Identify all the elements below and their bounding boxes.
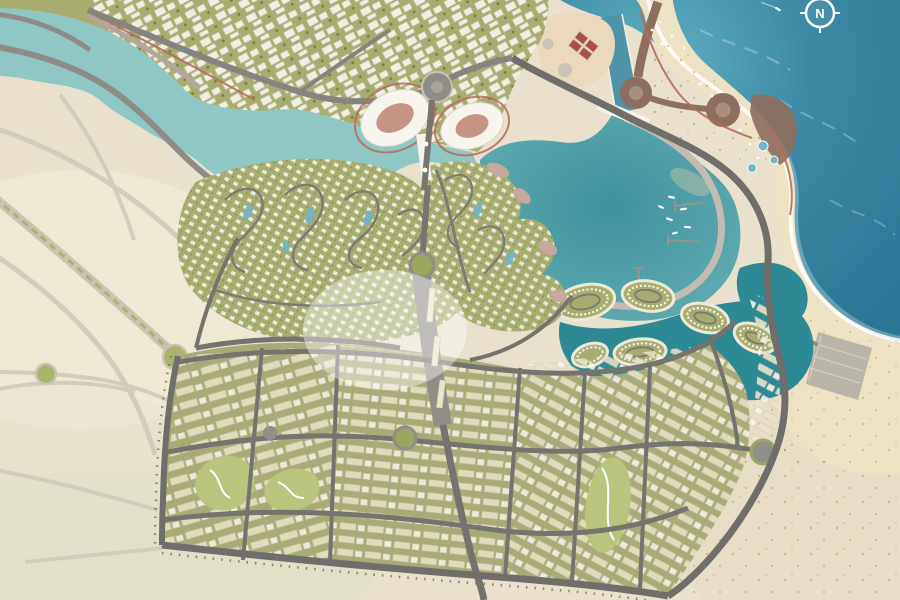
phase-highlight-overlay [303, 270, 467, 390]
beach-club-plaza [543, 39, 554, 50]
desert-roundabout [36, 364, 56, 384]
masterplan-map: N [0, 0, 900, 600]
compass-north-label: N [815, 6, 824, 21]
small-roundabout [263, 426, 277, 440]
beach-pool [758, 141, 768, 151]
bridge-tower [424, 142, 429, 147]
spine-roundabout [410, 253, 434, 277]
beach-club-plaza [558, 63, 572, 77]
plaza-circle-inner [629, 86, 643, 100]
plaza-circle-inner [716, 103, 731, 118]
bridge-tower [423, 168, 428, 173]
town-roundabout-center [431, 81, 443, 93]
beach-pool [770, 156, 778, 164]
beach-pool [748, 164, 757, 173]
city-roundabout [394, 427, 416, 449]
